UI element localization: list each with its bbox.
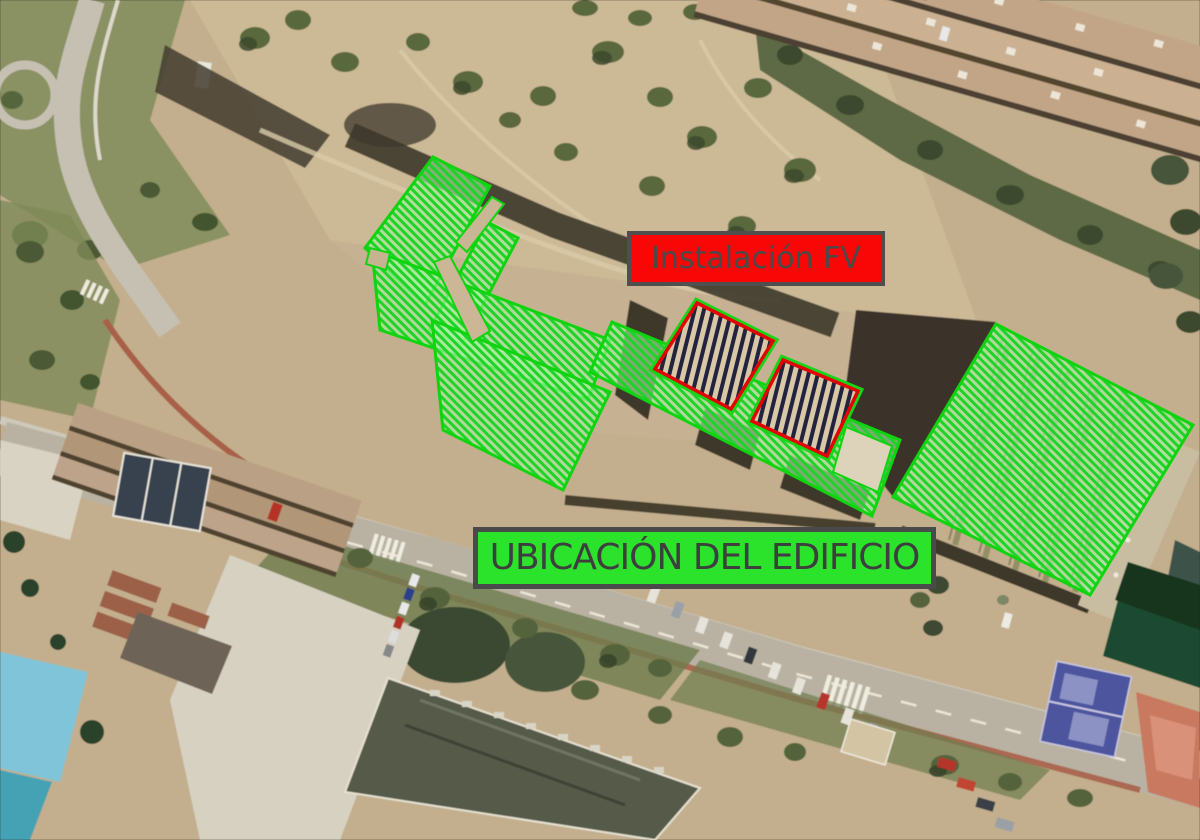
building-location-label-text: UBICACIÓN DEL EDIFICIO	[490, 540, 920, 576]
pv-installation-label: Instalación FV	[627, 231, 885, 286]
pv-installation-label-text: Instalación FV	[651, 244, 861, 274]
satellite-scene	[0, 0, 1200, 840]
annotated-satellite-map: Instalación FV UBICACIÓN DEL EDIFICIO	[0, 0, 1200, 840]
building-location-label: UBICACIÓN DEL EDIFICIO	[473, 527, 936, 589]
